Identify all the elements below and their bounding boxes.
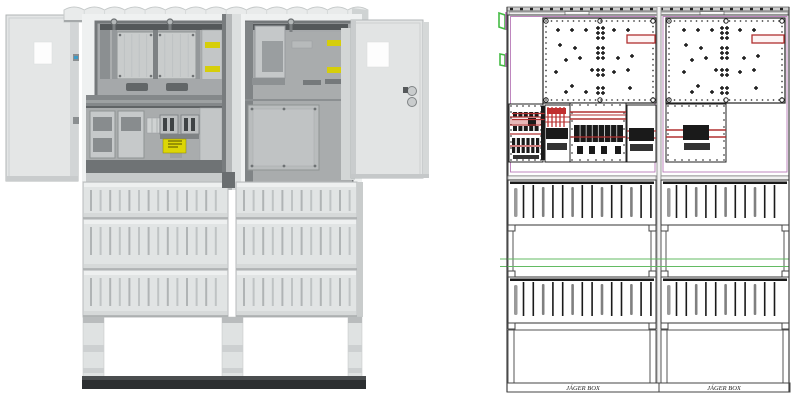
svg-text:JÁGER BOX: JÁGER BOX <box>707 384 742 392</box>
svg-text:JÁGER BOX: JÁGER BOX <box>566 384 601 392</box>
